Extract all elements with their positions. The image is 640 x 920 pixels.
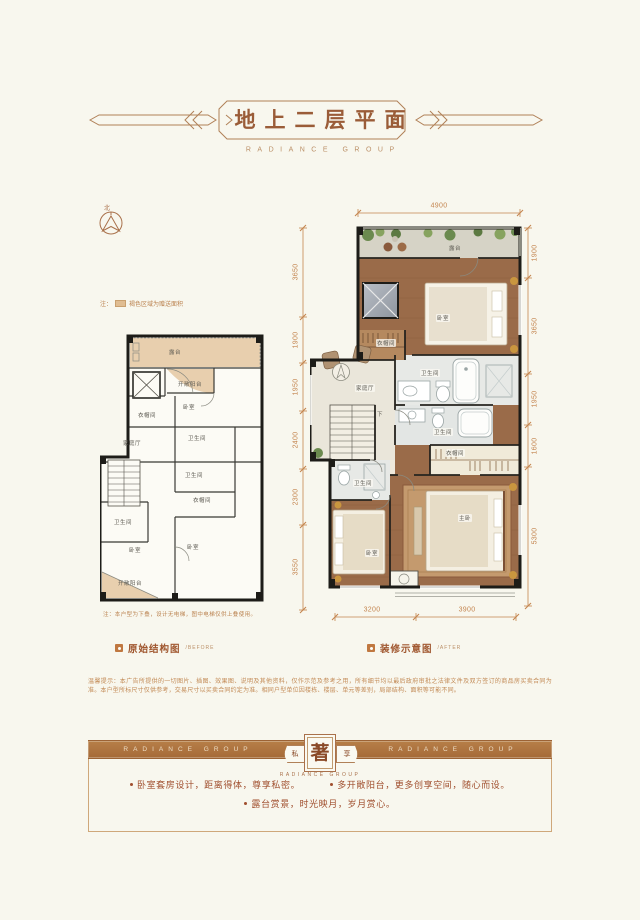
before-caption-text: 原始结构图	[128, 641, 181, 655]
bullet-dot-icon	[130, 783, 133, 786]
dim-right: 1950	[532, 391, 539, 408]
bullet-dot-icon	[244, 802, 247, 805]
room-label: 卧室	[129, 546, 141, 554]
feature-row: 露台赏景，时光映月，岁月赏心。	[244, 797, 395, 810]
dim-bottom: 3200	[364, 607, 381, 614]
dim-right: 3650	[532, 318, 539, 335]
legend-note-text: 褐色区域为赠送面积	[129, 299, 183, 308]
room-label: 开敞阳台	[118, 579, 142, 587]
before-caption-en: /BEFORE	[186, 645, 215, 651]
dimension-lines	[290, 200, 546, 630]
feature-text: 卧室套房设计，距离得体，尊享私密。	[137, 778, 300, 791]
dim-right: 5300	[532, 528, 539, 545]
dim-left: 1950	[293, 379, 300, 396]
seal-right: 享	[336, 745, 358, 763]
before-plan: 露台 开敞阳台 衣帽间 卧室 卫生间 家庭厅 卫生间 衣帽间 卫生间 卧室 卧室…	[100, 332, 268, 614]
caption-bullet-icon	[115, 644, 123, 652]
legend-note-prefix: 注：	[100, 299, 112, 308]
poster-canvas: 地上二层平面 RADIANCE GROUP 北 注： 褐色区域为赠送面积	[0, 0, 640, 920]
page-title: 地上二层平面	[226, 104, 415, 134]
feature-text: 露台赏景，时光映月，岁月赏心。	[251, 797, 395, 810]
room-label: 露台	[169, 348, 181, 356]
dim-top: 4900	[431, 203, 448, 210]
bullet-dot-icon	[330, 783, 333, 786]
caption-bullet-icon	[367, 644, 375, 652]
room-label: 开敞阳台	[178, 380, 202, 388]
seal-left: 私	[284, 745, 306, 763]
seal-inner-frame: 著	[307, 737, 333, 769]
legend-note: 注： 褐色区域为赠送面积	[100, 299, 183, 308]
room-label: 衣帽间	[138, 411, 156, 419]
brand-subtitle: RADIANCE GROUP	[239, 147, 400, 154]
dim-left: 2400	[293, 432, 300, 449]
after-plan-caption: 装修示意图 /AFTER	[367, 641, 461, 655]
room-label: 衣帽间	[193, 496, 211, 504]
seal-left-char: 私	[292, 749, 299, 759]
gift-area-swatch	[115, 300, 126, 307]
room-label: 卫生间	[188, 434, 206, 442]
banner-brand-left: RADIANCE GROUP	[123, 741, 252, 758]
dim-bottom: 3900	[459, 607, 476, 614]
room-label: 家庭厅	[123, 439, 141, 447]
feature-list: 卧室套房设计，距离得体，尊享私密。 多开敞阳台，更多创享空间，随心而设。 露台赏…	[88, 778, 552, 810]
disclaimer-text: 温馨提示：本广告所提供的一切图片、插图、效果图、说明及其他资料，仅作示范及参考之…	[88, 678, 552, 695]
feature-item: 多开敞阳台，更多创享空间，随心而设。	[330, 778, 510, 791]
before-plan-caption: 原始结构图 /BEFORE	[115, 641, 214, 655]
seal-center-char: 著	[310, 744, 329, 763]
dim-left: 3650	[293, 264, 300, 281]
feature-item: 露台赏景，时光映月，岁月赏心。	[244, 797, 395, 810]
feature-text: 多开敞阳台，更多创享空间，随心而设。	[337, 778, 510, 791]
banner-brand-right: RADIANCE GROUP	[388, 741, 517, 758]
after-caption-en: /AFTER	[438, 645, 462, 651]
feature-item: 卧室套房设计，距离得体，尊享私密。	[130, 778, 300, 791]
seal-box: 著	[304, 734, 336, 772]
room-label: 卫生间	[114, 518, 132, 526]
feature-row: 卧室套房设计，距离得体，尊享私密。 多开敞阳台，更多创享空间，随心而设。	[130, 778, 510, 791]
dim-right: 1900	[532, 245, 539, 262]
dim-left: 3550	[293, 559, 300, 576]
seal-right-char: 享	[344, 749, 351, 759]
after-caption-text: 装修示意图	[380, 641, 433, 655]
dim-right: 1600	[532, 438, 539, 455]
dim-left: 1900	[293, 332, 300, 349]
before-plan-note: 注：本户型为下叠，设计无电梯，图中电梯仅供上叠使用。	[103, 610, 256, 618]
dim-left: 2300	[293, 489, 300, 506]
room-label: 卫生间	[185, 471, 203, 479]
room-label: 卧室	[183, 403, 195, 411]
compass-icon	[96, 208, 126, 238]
room-label: 卧室	[187, 543, 199, 551]
